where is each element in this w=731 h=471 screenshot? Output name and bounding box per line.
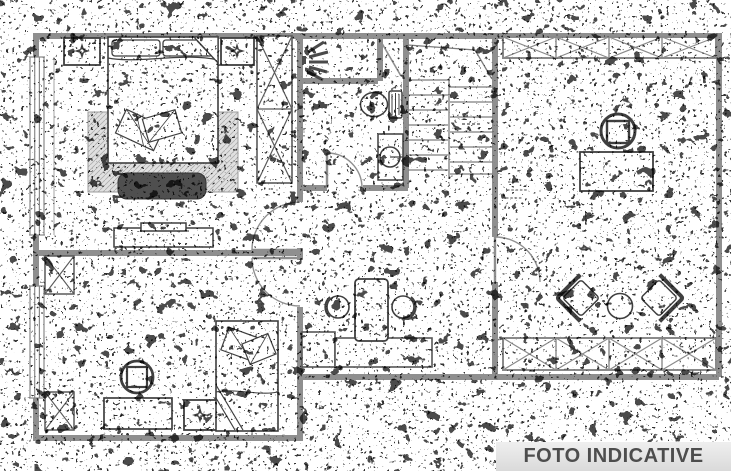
foto-indicative-banner: FOTO INDICATIVE [496, 442, 731, 471]
screenshot-root: FOTO INDICATIVE [0, 0, 731, 471]
banner-text: FOTO INDICATIVE [523, 445, 703, 468]
scan-noise-coarse [0, 0, 731, 471]
floor-plan-drawing [0, 0, 731, 471]
